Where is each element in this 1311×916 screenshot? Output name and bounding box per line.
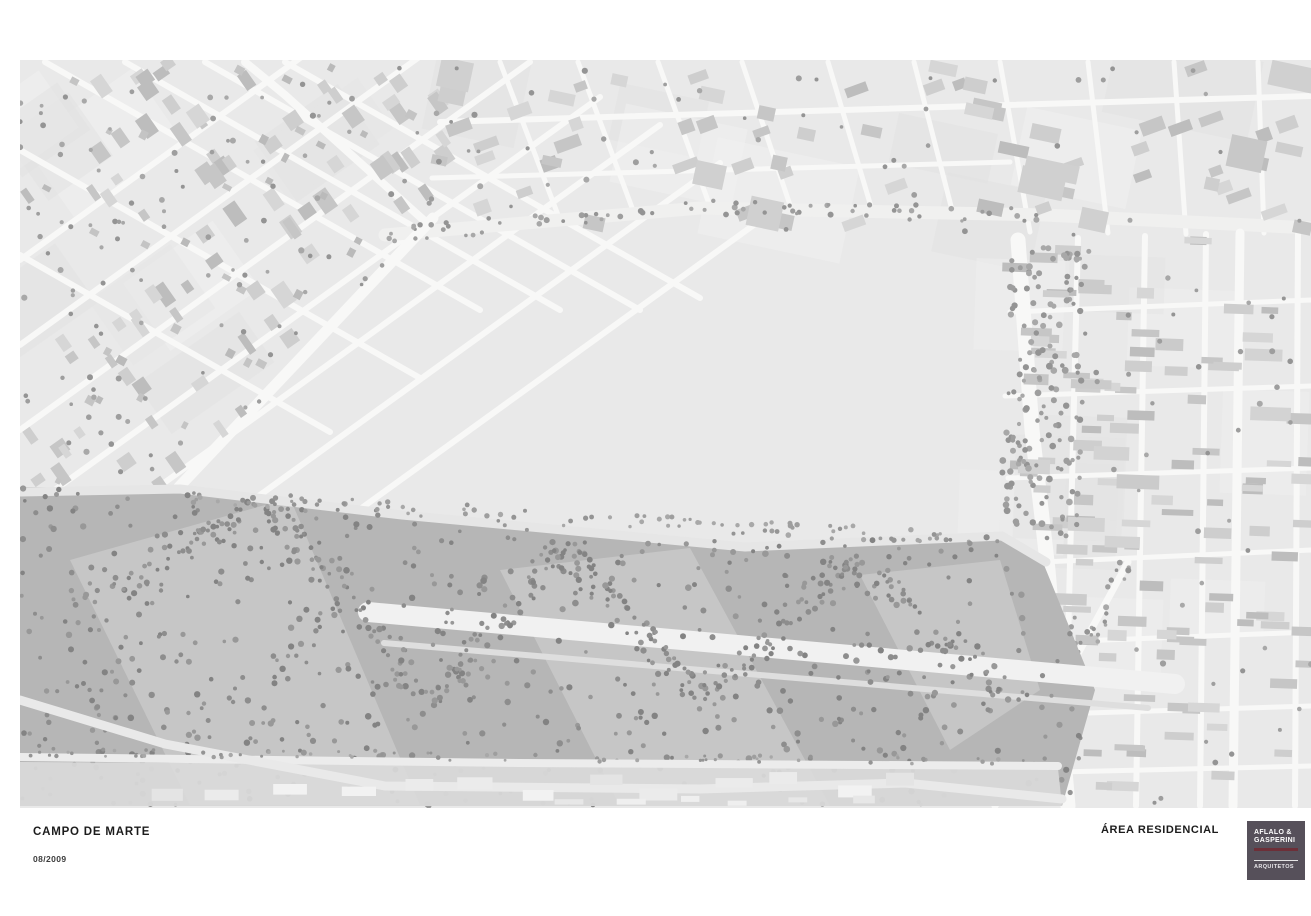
logo-name-line3: ARQUITETOS: [1254, 864, 1305, 870]
logo-accent-bar: [1254, 848, 1298, 851]
logo-divider: [1254, 860, 1298, 861]
site-plan-map: [0, 0, 1311, 916]
page-title: CAMPO DE MARTE: [33, 826, 150, 838]
logo-name-line2: GASPERINI: [1254, 837, 1305, 845]
site-plan-rendering: [0, 0, 1311, 916]
aflalo-gasperini-logo: AFLALO & GASPERINI ARQUITETOS: [1247, 821, 1305, 880]
logo-name-line1: AFLALO &: [1254, 829, 1305, 837]
date-label: 08/2009: [33, 854, 67, 864]
presentation-board: CAMPO DE MARTE 08/2009 ÁREA RESIDENCIAL …: [0, 0, 1311, 916]
sheet-title: ÁREA RESIDENCIAL: [1101, 824, 1219, 836]
